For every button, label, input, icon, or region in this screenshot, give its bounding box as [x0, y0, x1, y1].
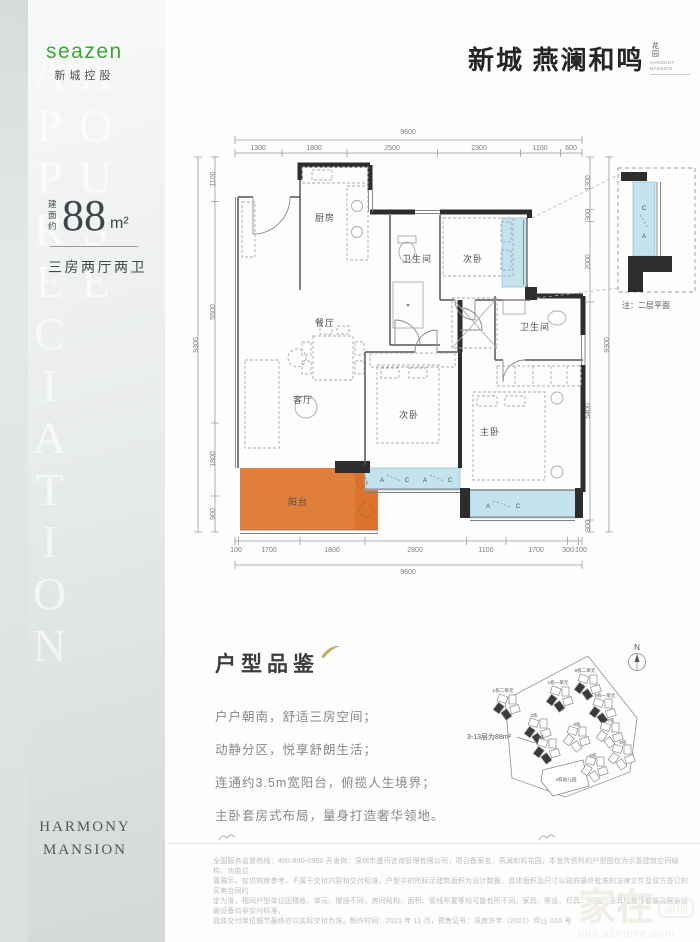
- sidebar-footer-line1: HARMONY: [0, 816, 170, 839]
- watermark-url: bbs.szhome.com: [578, 929, 694, 940]
- building-cluster: [546, 686, 573, 712]
- poster-page: HOUSE APPRECIATION seazen 新城控股 新城 燕澜和鸣 花…: [0, 0, 700, 942]
- inset-note: 注：二层平面: [622, 300, 670, 310]
- building-cluster: [493, 694, 520, 720]
- legal-line: 全国服务监督热线：400-890-0950 开发商：深圳市盛讯咨询管理有限公司，…: [213, 857, 691, 877]
- ac-label-c: C: [448, 478, 453, 484]
- appreciation-title-text: 户型品鉴: [215, 653, 319, 676]
- dim-top-total: 9600: [400, 129, 416, 136]
- dim-label: 900: [210, 508, 217, 520]
- area-prefix: 建面约: [48, 199, 58, 232]
- walls-partition: [238, 180, 583, 490]
- room-label-master: 主卧: [480, 426, 500, 437]
- siteplan-drawing: 1栋二单元 1栋一单元 9栋二单元 9栋一单元 2栋 3栋 8栋 7栋 6栋 5…: [455, 638, 700, 810]
- dim-label: 5400: [585, 403, 592, 419]
- site-watermark: 家在 深圳 bbs.szhome.com: [578, 889, 694, 940]
- project-title-garden: 花园: [650, 42, 660, 58]
- dim-label: 300: [585, 209, 592, 221]
- dim-label: 1800: [210, 451, 217, 467]
- appreciation-line: 主卧套房式布局，量身打造奢华领地。: [215, 805, 485, 824]
- building-label: 9栋一单元: [595, 692, 616, 699]
- building-label: 8栋: [573, 721, 581, 728]
- dim-label: 2300: [471, 145, 487, 152]
- watermark-main: 家在: [578, 889, 654, 927]
- dim-label: 600: [565, 145, 577, 152]
- dim-label: 1100: [478, 547, 493, 554]
- project-title-english: HARMONY MANSION: [650, 60, 690, 75]
- building-label: 6栋: [619, 739, 627, 746]
- building-label: 3栋: [537, 734, 545, 741]
- appreciation-title: 户型品鉴: [215, 648, 319, 678]
- brand-logo-wordmark: seazen: [46, 40, 123, 64]
- dim-label: 1300: [585, 175, 592, 191]
- dim-bottom-total: 9600: [400, 569, 416, 576]
- brand-logo-chinese: 新城控股: [46, 67, 123, 83]
- building-cluster: [563, 726, 590, 752]
- area-value: 88: [62, 196, 106, 236]
- area-unit: m²: [110, 215, 129, 233]
- dim-label: 1800: [324, 547, 340, 554]
- unit-layout: 三房两厅两卫: [48, 257, 147, 277]
- building-label: 5栋: [589, 752, 597, 759]
- room-label-bath1: 卫生间: [402, 253, 432, 264]
- building-label: 2栋: [530, 712, 538, 719]
- area-divider: [50, 246, 138, 247]
- watermark-badge: 深圳: [658, 898, 694, 918]
- appreciation-line: 动静分区，悦享舒朗生活；: [215, 739, 485, 758]
- dim-label: 300: [562, 547, 574, 554]
- project-title-block: 新城 燕澜和鸣 花园 HARMONY MANSION: [468, 40, 690, 77]
- floorplan-drawing: 9600 1300 1800 2500 2300 1100 600 9300 1…: [185, 120, 700, 630]
- dim-label: 5500: [210, 304, 217, 320]
- ac-label-c: C: [405, 478, 410, 484]
- compass-label: N: [634, 643, 640, 652]
- room-label-kitchen: 厨房: [315, 212, 335, 223]
- dim-label: 1100: [532, 145, 547, 152]
- unit-area-block: 建面约 88 m² 三房两厅两卫: [48, 196, 147, 277]
- sidebar-footer: HARMONY MANSION: [0, 816, 170, 861]
- horizontal-divider: [168, 843, 700, 844]
- building-label: 9栋二单元: [575, 667, 596, 674]
- walls-thick: [300, 163, 583, 519]
- inset-ac-label-a: A: [642, 234, 646, 240]
- building-label: 1栋二单元: [493, 687, 514, 694]
- left-dark-strip: [0, 0, 28, 942]
- appreciation-lines: 户户朝南，舒适三房空间； 动静分区，悦享舒朗生活； 连通约3.5m宽阳台，俯揽人…: [215, 706, 485, 824]
- ac-label-a: A: [423, 478, 427, 484]
- door-arcs: [253, 197, 525, 382]
- room-label-bed3: 次卧: [399, 409, 419, 420]
- dim-label: 1700: [528, 547, 544, 554]
- appreciation-line: 连通约3.5m宽阳台，俯揽人生境界；: [215, 772, 485, 791]
- bird-decoration-icon: [538, 834, 556, 842]
- dim-label: 2000: [585, 254, 592, 270]
- building-label: 7栋: [607, 717, 615, 724]
- ac-label-a: A: [380, 478, 384, 484]
- dim-label: 1300: [250, 145, 266, 152]
- dim-right-total: 9300: [604, 337, 611, 353]
- dim-label: 300: [585, 520, 592, 532]
- dim-label: 2800: [407, 547, 423, 554]
- appreciation-section: 户型品鉴 户户朝南，舒适三房空间； 动静分区，悦享舒朗生活； 连通约3.5m宽阳…: [215, 648, 485, 838]
- gold-leaf-icon: [319, 644, 341, 659]
- dim-label: 1700: [261, 547, 277, 554]
- dim-label: 100: [230, 547, 242, 554]
- dim-left-total: 9300: [193, 337, 200, 353]
- dim-label: 1800: [306, 145, 322, 152]
- second-floor-inset: C A 注：二层平面: [532, 168, 695, 310]
- building-label: 1栋一单元: [548, 679, 569, 686]
- brand-logo: seazen 新城控股: [46, 40, 123, 83]
- room-label-bed2: 次卧: [463, 253, 483, 264]
- area-callout: 3-13层为88m²: [467, 732, 512, 741]
- room-label-living: 客厅: [293, 394, 313, 405]
- furniture: [242, 167, 581, 517]
- dim-label: 1100: [210, 171, 217, 186]
- room-label-bath2: 卫生间: [520, 321, 550, 332]
- ac-label-c: C: [516, 504, 521, 510]
- building-label: 4栋幼儿园: [556, 776, 577, 783]
- inset-ac-label-c: C: [642, 206, 647, 212]
- dim-label: 2500: [384, 145, 400, 152]
- room-label-balcony: 阳台: [288, 496, 308, 507]
- project-title-side: 花园 HARMONY MANSION: [650, 42, 690, 75]
- room-label-dining: 餐厅: [315, 317, 335, 328]
- compass-icon: N: [629, 643, 646, 671]
- dim-label: 100: [575, 547, 587, 554]
- ac-label-a: A: [486, 504, 490, 510]
- appreciation-line: 户户朝南，舒适三房空间；: [215, 706, 485, 725]
- vertical-watermark-text: HOUSE APPRECIATION: [26, 48, 118, 918]
- project-title: 新城 燕澜和鸣: [468, 40, 645, 77]
- sidebar-footer-line2: MANSION: [0, 839, 170, 862]
